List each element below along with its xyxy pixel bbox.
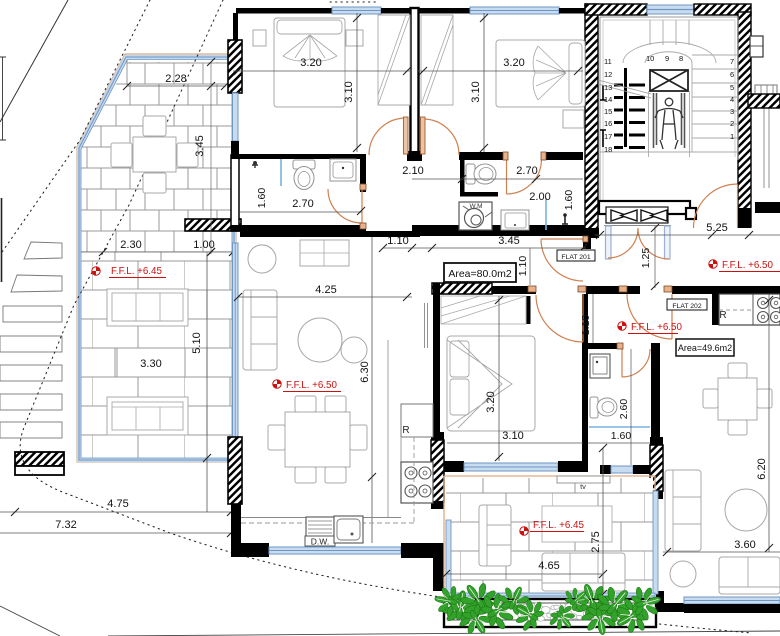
svg-text:R: R	[719, 310, 726, 321]
svg-text:3: 3	[730, 107, 734, 116]
svg-text:1.25: 1.25	[640, 248, 652, 269]
svg-text:3.10: 3.10	[502, 430, 523, 442]
svg-text:2.70: 2.70	[292, 198, 313, 210]
svg-text:4.25: 4.25	[315, 284, 336, 296]
svg-text:7: 7	[730, 57, 734, 66]
svg-text:7.32: 7.32	[55, 519, 76, 531]
svg-text:3.20: 3.20	[485, 391, 497, 412]
svg-text:F.F.L. +6.50: F.F.L. +6.50	[722, 260, 773, 271]
svg-text:17: 17	[604, 132, 612, 141]
svg-text:R: R	[402, 425, 409, 436]
svg-text:F.F.L. +6.50: F.F.L. +6.50	[286, 380, 337, 391]
svg-text:9: 9	[665, 54, 669, 63]
svg-text:F.F.L. +6.45: F.F.L. +6.45	[533, 520, 584, 531]
svg-text:3.20: 3.20	[503, 57, 524, 69]
svg-text:8: 8	[679, 54, 683, 63]
svg-text:14: 14	[604, 95, 612, 104]
svg-text:1: 1	[730, 132, 734, 141]
svg-text:3.45: 3.45	[498, 235, 519, 247]
svg-text:2.75: 2.75	[590, 531, 602, 552]
svg-text:6.30: 6.30	[359, 361, 371, 382]
svg-text:2.30: 2.30	[120, 239, 141, 251]
svg-text:13: 13	[604, 83, 612, 92]
svg-text:3.30: 3.30	[140, 358, 161, 370]
svg-text:3.20: 3.20	[300, 57, 321, 69]
svg-text:4: 4	[730, 95, 734, 104]
svg-text:5: 5	[730, 83, 734, 92]
svg-text:3.10: 3.10	[343, 81, 355, 102]
svg-text:6.20: 6.20	[756, 458, 768, 479]
svg-text:10: 10	[646, 54, 654, 63]
svg-text:3.60: 3.60	[734, 539, 755, 551]
svg-text:D.W.: D.W.	[311, 537, 329, 547]
svg-text:F.F.L. +6.50: F.F.L. +6.50	[631, 322, 682, 333]
svg-text:5.25: 5.25	[706, 222, 727, 234]
svg-text:4.75: 4.75	[107, 498, 128, 510]
svg-text:F.F.L. +6.45: F.F.L. +6.45	[111, 266, 162, 277]
svg-text:1.10: 1.10	[387, 235, 408, 247]
svg-text:2.10: 2.10	[402, 165, 423, 177]
svg-text:2: 2	[730, 119, 734, 128]
svg-text:1.60: 1.60	[256, 188, 268, 209]
svg-text:11: 11	[604, 57, 612, 66]
svg-text:5.10: 5.10	[191, 332, 203, 353]
svg-text:15: 15	[604, 107, 612, 116]
svg-text:12: 12	[604, 70, 612, 79]
svg-text:18: 18	[604, 145, 612, 154]
svg-text:W.M: W.M	[470, 203, 483, 210]
svg-text:FLAT 201: FLAT 201	[561, 254, 590, 261]
svg-text:1.10: 1.10	[517, 256, 529, 277]
svg-text:16: 16	[604, 119, 612, 128]
svg-text:2.28: 2.28	[165, 73, 186, 85]
svg-text:6: 6	[730, 70, 734, 79]
svg-text:2.60: 2.60	[618, 399, 630, 420]
svg-text:3.45: 3.45	[194, 135, 206, 156]
svg-text:1.60: 1.60	[563, 190, 575, 211]
svg-text:2.70: 2.70	[516, 165, 537, 177]
svg-text:1.00: 1.00	[193, 239, 214, 251]
svg-text:tv: tv	[580, 482, 586, 491]
svg-text:FLAT 202: FLAT 202	[672, 303, 701, 310]
svg-text:4.65: 4.65	[538, 560, 559, 572]
svg-text:3.10: 3.10	[470, 81, 482, 102]
svg-text:1.60: 1.60	[611, 430, 632, 442]
svg-text:Area=80.0m2: Area=80.0m2	[448, 268, 511, 280]
svg-text:1.10: 1.10	[580, 315, 592, 336]
svg-text:2.00: 2.00	[529, 191, 550, 203]
svg-text:Area=49.6m2: Area=49.6m2	[678, 343, 732, 353]
